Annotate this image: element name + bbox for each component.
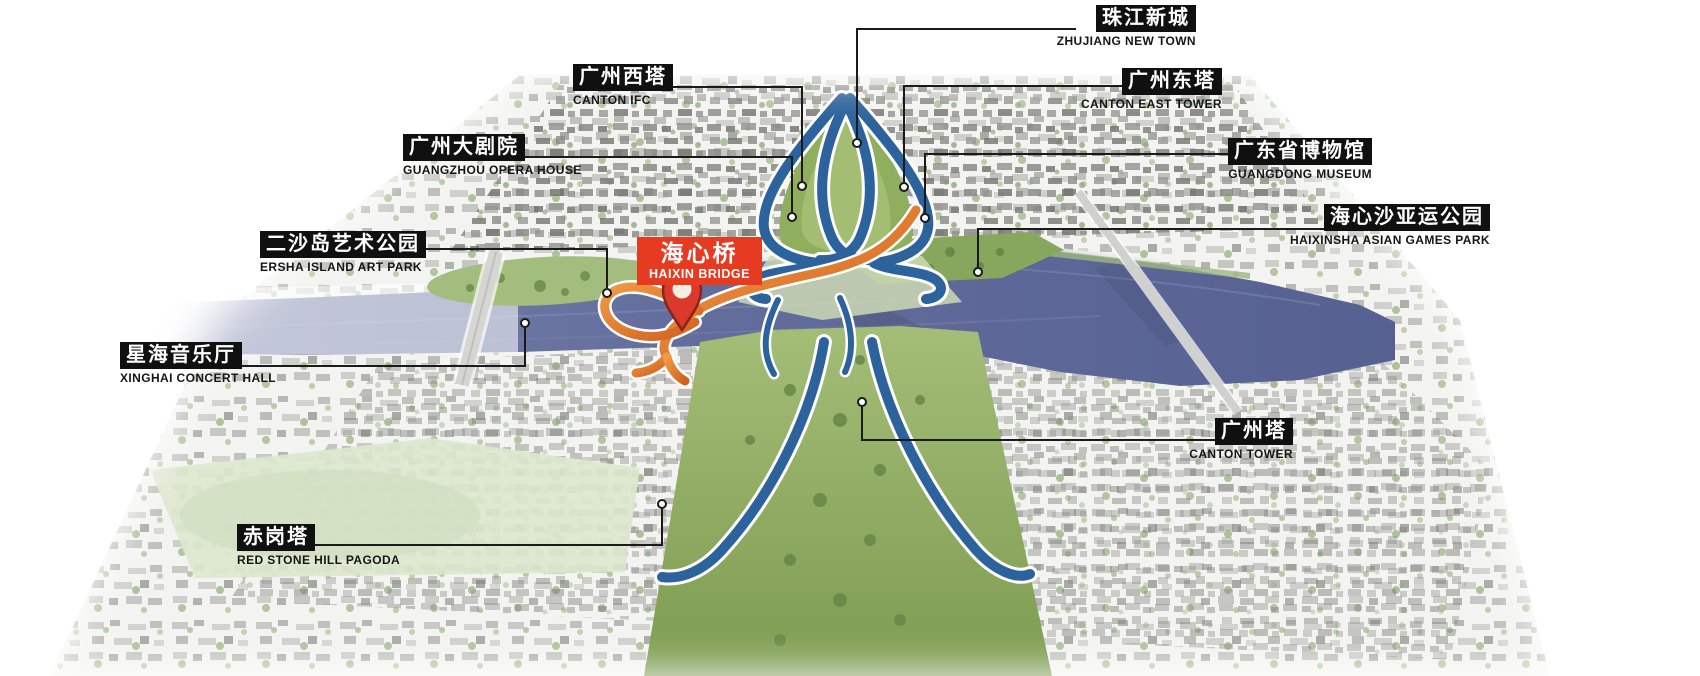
callout-guangzhou-opera-house: 广州大剧院 GUANGZHOU OPERA HOUSE	[403, 134, 582, 177]
label-en: ZHUJIANG NEW TOWN	[1057, 34, 1196, 48]
callout-canton-east-tower: 广州东塔 CANTON EAST TOWER	[1081, 68, 1222, 111]
label-en: HAIXINSHA ASIAN GAMES PARK	[1290, 233, 1490, 247]
label-cn: 广州塔	[1215, 418, 1293, 445]
callout-zhujiang-new-town: 珠江新城 ZHUJIANG NEW TOWN	[1057, 5, 1196, 48]
map-illustration	[0, 0, 1700, 676]
callout-ersha-island-art-park: 二沙岛艺术公园 ERSHA ISLAND ART PARK	[260, 231, 426, 274]
label-en: HAIXIN BRIDGE	[649, 267, 750, 281]
label-cn: 二沙岛艺术公园	[260, 231, 426, 258]
label-cn: 星海音乐厅	[120, 342, 242, 369]
label-en: CANTON IFC	[573, 93, 651, 107]
label-en: ERSHA ISLAND ART PARK	[260, 260, 422, 274]
label-cn: 广州大剧院	[403, 134, 525, 161]
label-en: RED STONE HILL PAGODA	[237, 553, 400, 567]
callout-guangdong-museum: 广东省博物馆 GUANGDONG MUSEUM	[1228, 138, 1372, 181]
callout-xinghai-concert-hall: 星海音乐厅 XINGHAI CONCERT HALL	[120, 342, 276, 385]
label-cn: 广东省博物馆	[1228, 138, 1372, 165]
label-cn: 赤岗塔	[237, 524, 315, 551]
label-cn: 珠江新城	[1096, 5, 1196, 32]
callout-haixinsha-asian-games-park: 海心沙亚运公园 HAIXINSHA ASIAN GAMES PARK	[1290, 204, 1490, 247]
callout-haixin-bridge: 海心桥 HAIXIN BRIDGE	[637, 237, 762, 285]
guangzhou-landmark-map: 珠江新城 ZHUJIANG NEW TOWN 广州西塔 CANTON IFC 广…	[0, 0, 1700, 676]
label-en: CANTON TOWER	[1189, 447, 1293, 461]
label-cn: 广州西塔	[573, 64, 673, 91]
label-en: GUANGZHOU OPERA HOUSE	[403, 163, 582, 177]
label-en: GUANGDONG MUSEUM	[1228, 167, 1372, 181]
label-en: CANTON EAST TOWER	[1081, 97, 1222, 111]
callout-canton-ifc: 广州西塔 CANTON IFC	[573, 64, 673, 107]
callout-canton-tower: 广州塔 CANTON TOWER	[1189, 418, 1293, 461]
label-en: XINGHAI CONCERT HALL	[120, 371, 276, 385]
label-cn: 广州东塔	[1122, 68, 1222, 95]
label-cn: 海心桥	[660, 240, 738, 266]
callout-red-stone-hill-pagoda: 赤岗塔 RED STONE HILL PAGODA	[237, 524, 400, 567]
label-cn: 海心沙亚运公园	[1324, 204, 1490, 231]
